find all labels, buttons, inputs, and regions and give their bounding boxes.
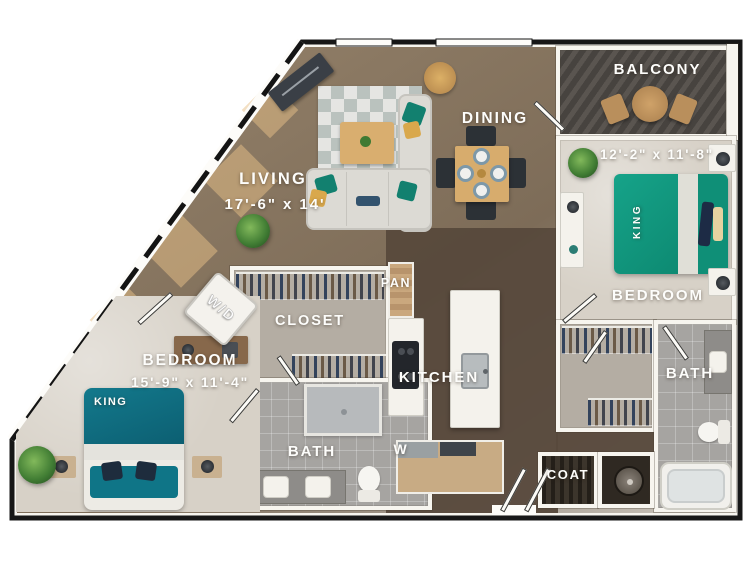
closet2-room [556, 320, 656, 432]
bedroom2-nightstand-bottom [708, 268, 736, 296]
coat-label: COAT [540, 468, 596, 482]
bedroom1-pillow-navy-2 [135, 461, 157, 482]
top-window-1 [336, 39, 392, 46]
closet2-rack-top [562, 326, 652, 354]
sofa-pillow-mustard-1 [403, 121, 422, 140]
dining-label: DINING [455, 110, 535, 127]
bath1-shower [304, 384, 382, 436]
bedroom1-bed: KING [84, 388, 184, 510]
bath1-toilet [354, 466, 384, 506]
dining-chair-top [466, 126, 496, 146]
bedroom1-nightstand-right [192, 456, 222, 478]
pantry-label: PAN [376, 277, 416, 291]
closet2-rack-bottom [588, 398, 652, 426]
bedroom2-plant [568, 148, 598, 178]
side-table [424, 62, 456, 94]
dining-chair-right [506, 158, 526, 188]
bedroom1-dims-label: 15'-9" x 11'-4" [120, 375, 260, 390]
living-label: LIVING [228, 170, 318, 188]
top-window-2 [436, 39, 532, 46]
dining-chair-bottom [466, 200, 496, 220]
bedroom1-bed-size-label: KING [94, 396, 127, 408]
bath2-label: BATH [660, 366, 720, 383]
living-plant [236, 214, 270, 248]
bedroom2-bed-size-label: KING [632, 204, 643, 239]
bath2-tub [660, 462, 732, 510]
closet1-rack-top [236, 272, 384, 300]
coffee-table [340, 122, 394, 164]
bedroom2-label: BEDROOM [612, 288, 702, 305]
bedroom1-label: BEDROOM [130, 352, 250, 369]
bedroom2-dresser [560, 192, 584, 268]
bedroom2-bed: KING [614, 174, 728, 274]
dining-table [455, 146, 509, 202]
sofa-pillow-navy [356, 196, 380, 206]
bedroom1-plant [18, 446, 56, 484]
balcony-label: BALCONY [610, 62, 705, 79]
utility-room [598, 452, 654, 508]
balcony-chair-left [600, 93, 630, 125]
bedroom2-pillow-tan [713, 207, 723, 241]
bath2-room [654, 320, 736, 512]
bath2-toilet [698, 420, 732, 444]
bedroom1-pillow-navy-1 [101, 461, 123, 482]
floor-plan: KING [0, 0, 747, 563]
dining-chair-left [436, 158, 456, 188]
balcony-table [632, 86, 668, 122]
kitchen-island [450, 290, 500, 428]
bath1-label: BATH [282, 444, 342, 461]
closet1-label: CLOSET [270, 314, 350, 330]
living-dims-label: 17'-6" x 14' [210, 197, 340, 214]
balcony-wall-step [727, 44, 738, 140]
bath1-vanity [254, 470, 346, 504]
kitchen-counter-left [388, 318, 424, 416]
bath2-vanity [704, 330, 732, 394]
water-heater [614, 466, 644, 496]
dishwasher [440, 442, 476, 456]
balcony-room [556, 46, 730, 138]
washer-dryer-label: W/D [204, 293, 239, 326]
kitchen-label: KITCHEN [396, 370, 482, 387]
bedroom2-dims-label: 12'-2" x 11'-8" [600, 148, 710, 163]
balcony-chair-right [668, 93, 698, 125]
washer-letter-label: W [390, 442, 412, 457]
kitchen-counter-bottom [396, 440, 504, 494]
